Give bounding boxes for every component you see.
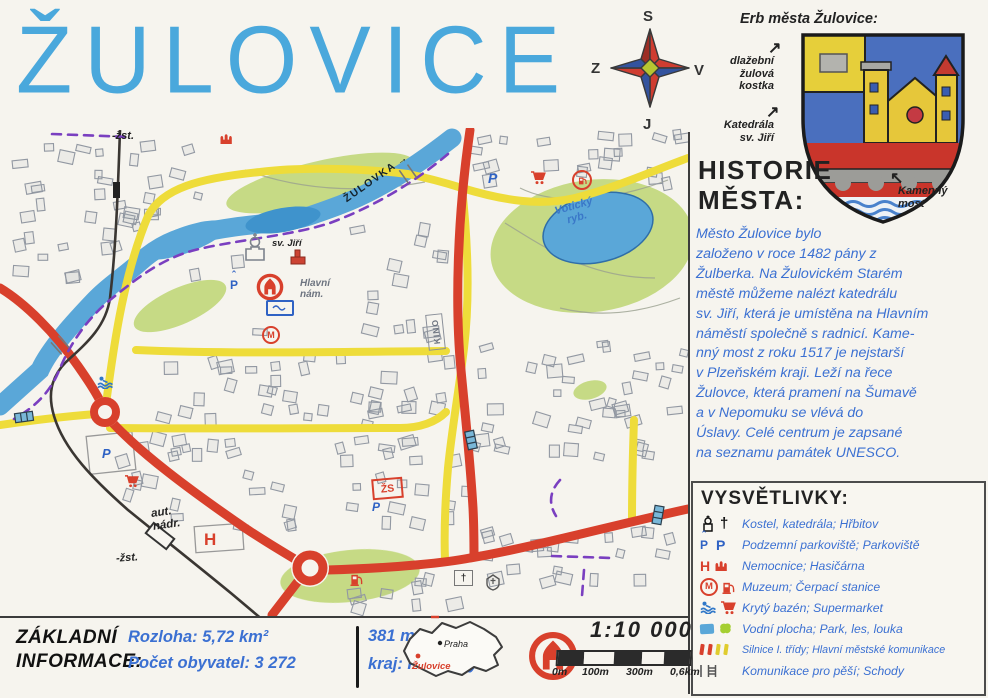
compass-star-icon [608,26,692,110]
population-stat: Počet obyvatel: 3 272 [128,654,296,673]
supermarket-icon [720,600,737,615]
train-stop-label: -žst. [116,551,139,565]
scale-bar-ticks: 0m 100m 300m 0,6km [552,666,702,680]
info-divider [356,626,359,688]
underground-parking-icon: ˆP [700,538,712,552]
fire-station-icon [219,132,234,145]
hospital-icon: H [204,530,216,550]
legend-item: Krytý bazén; Supermarket [693,597,984,618]
cinema-building: KINO [425,313,446,351]
arrow-ne-icon: ↗ [766,102,779,122]
legend-item: Silnice I. třídy; Hlavní městské komunik… [693,639,984,660]
underground-parking-icon: ˆP [230,278,242,292]
arrow-ne-icon: ↗ [768,38,781,58]
church-icon [486,574,500,591]
supermarket-icon [124,474,140,488]
parking-icon: P [488,170,497,186]
fire-station-icon [714,559,729,572]
map-legend: VYSVĚTLIVKY: † Kostel, katedrála; Hřbito… [691,481,986,696]
primary-road-swatch [707,644,712,655]
arrow-nw-icon: ↖ [890,168,903,188]
parking-icon: P [102,446,111,461]
column-divider-line [688,132,690,694]
legend-item: Vodní plocha; Park, les, louka [693,618,984,639]
scale-bar [556,650,693,666]
school-marker: ŽS [371,477,404,501]
stairs-icon [706,664,718,678]
history-text: Město Žulovice bylo založeno v roce 1482… [696,225,986,464]
hospital-icon: H [700,558,710,574]
capital-label: Praha [444,639,468,649]
bus-station-label: aut. nádr. [150,504,181,533]
swimming-pool-icon [700,601,716,614]
scale-tick: 100m [582,666,609,678]
main-square-label: Hlavní nám. [300,278,330,300]
town-dot [416,654,421,659]
city-map: -žst. ŽULOVKA → Votický ryb. P sv. Jiří [0,128,690,618]
museum-icon: M [700,578,718,596]
train-station-marker [113,182,120,198]
parking-icon: P [716,537,725,553]
museum-icon: M [262,326,280,344]
scale-tick: 0,6km [670,666,700,678]
train-station-label: -žst. [112,130,134,142]
water-swatch [700,623,715,634]
page-title: ŽULOVICE [16,4,572,116]
parking-icon: P [372,500,380,514]
info-sign-icon [266,300,294,316]
main-street-swatch [723,644,728,655]
town-label: Žulovice [411,660,451,672]
cross-icon: † [720,515,728,532]
cathedral-icon [238,232,274,264]
legend-item: ˆP P Podzemní parkoviště; Parkoviště [693,534,984,555]
label-stone-bridge: Kamenný most [898,185,948,210]
main-street-swatch [715,644,720,655]
gas-station-icon [572,170,592,190]
scale-tick: 0m [552,666,567,678]
supermarket-icon [530,170,547,185]
area-stat: Rozloha: 5,72 km² [128,628,268,647]
czech-republic-minimap: Praha Žulovice [398,613,510,693]
swimming-pool-icon [97,376,113,389]
legend-item: Komunikace pro pěší; Schody [693,660,984,681]
gas-pump-icon [722,580,735,594]
compass-rose: S V J Z [590,8,708,136]
map-scale-ratio: 1:10 000 [590,617,693,643]
capital-dot [438,641,442,645]
compass-east-label: V [694,62,704,79]
map-logo-icon [255,272,285,302]
scale-tick: 300m [626,666,653,678]
label-cobblestone: dlažební žulová kostka [710,55,774,93]
legend-item: M Muzeum; Čerpací stanice [693,576,984,597]
map-bottom-border [0,616,689,618]
legend-item: H Nemocnice; Hasičárna [693,555,984,576]
compass-north-label: S [643,8,653,25]
legend-item: † Kostel, katedrála; Hřbitov [693,513,984,534]
coat-of-arms-caption: Erb města Žulovice: [740,11,878,27]
town-hall-icon [289,248,307,266]
history-heading: HISTORIE MĚSTA: [698,155,832,215]
scanned-town-map-poster: ŽULOVICE S V J Z Erb města Žulovice: [0,0,988,698]
park-swatch [718,622,733,635]
legend-title: VYSVĚTLIVKY: [701,488,984,510]
cemetery-icon: † [454,570,473,586]
label-cathedral: Katedrála sv. Jiří [704,119,774,144]
gas-pump-icon [350,572,363,586]
primary-road-swatch [699,644,704,655]
cinema-label: KINO [429,319,442,345]
compass-west-label: Z [591,60,600,77]
basic-info-heading: ZÁKLADNÍ INFORMACE: [16,626,142,674]
